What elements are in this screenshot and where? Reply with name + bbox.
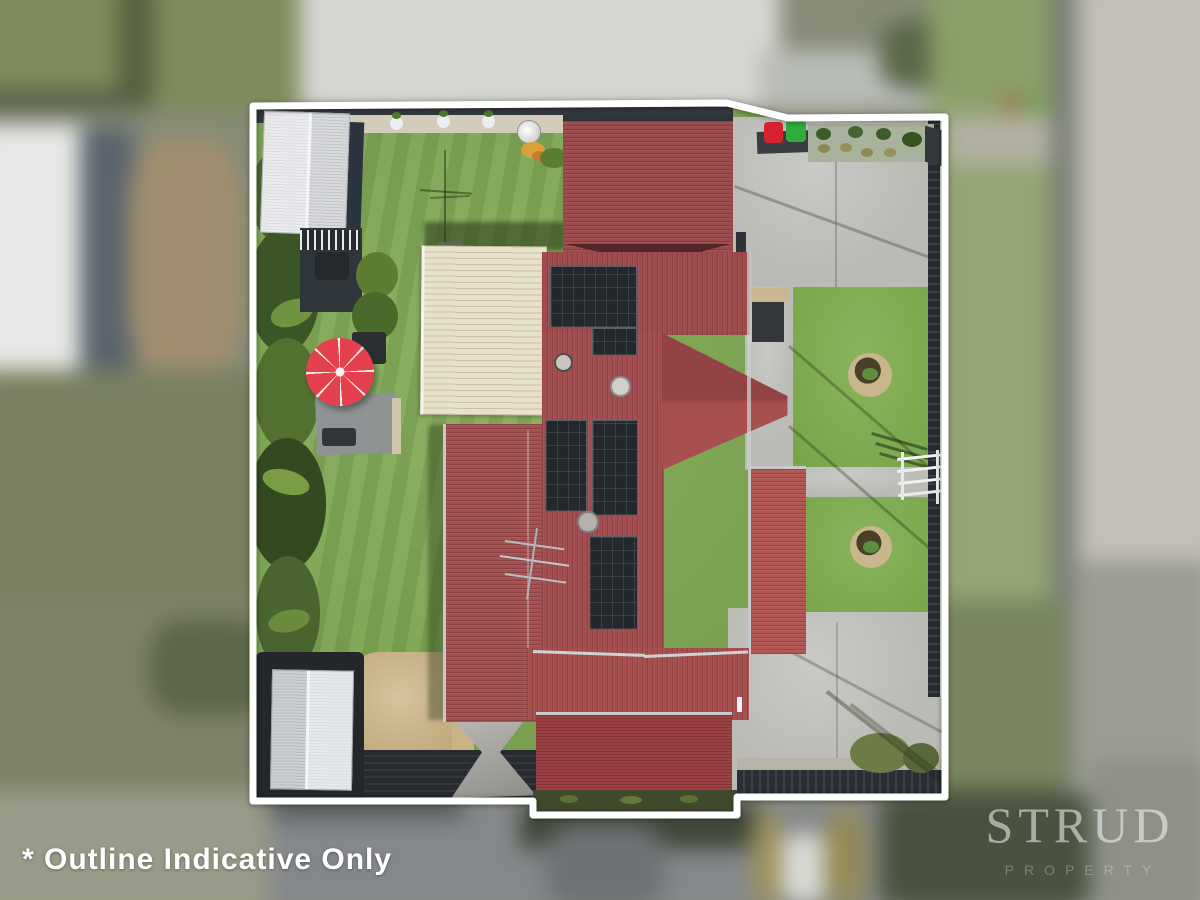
grass-tuft-4 xyxy=(902,132,922,147)
garage-roof-front xyxy=(536,712,732,796)
clothesline-post-right xyxy=(936,450,939,504)
road-bottom-right-corner xyxy=(1090,760,1200,900)
car-dark-bottom xyxy=(545,825,665,900)
red-umbrella xyxy=(306,338,374,406)
green-wheelie-bin xyxy=(786,120,806,142)
solar-array-top-ext xyxy=(592,328,637,356)
front-garden-tuft-3 xyxy=(680,795,698,803)
satellite-dish xyxy=(517,120,541,144)
pebble-strip-right xyxy=(940,117,945,697)
palm-foliage-4 xyxy=(248,438,326,570)
paver-border-tan xyxy=(392,398,401,454)
pot-plant-2 xyxy=(439,110,448,117)
grass-tuft-3 xyxy=(876,128,891,140)
roof-vent-mid xyxy=(610,376,631,397)
hedge-tan-a xyxy=(752,812,782,900)
grass-tuft-2 xyxy=(848,126,863,138)
upper-wing-roof xyxy=(563,114,733,252)
east-wing-roof xyxy=(748,466,806,654)
garden-shed-roof xyxy=(270,669,354,790)
solar-array-top xyxy=(550,266,637,328)
outline-disclaimer: * Outline Indicative Only xyxy=(22,843,392,877)
ridge-cap-silver xyxy=(747,252,751,468)
solar-array-mid-right xyxy=(592,420,638,516)
garden-shed-light-half xyxy=(307,671,353,790)
scrub-tan-left xyxy=(128,138,242,378)
rear-shed-light-half xyxy=(261,112,311,234)
pergola-roof xyxy=(420,245,546,415)
solar-array-mid-left xyxy=(545,420,587,512)
gravel-bed-mid xyxy=(750,288,790,302)
tree-shadow-left xyxy=(150,620,270,715)
carport-slat-roof xyxy=(300,230,360,250)
hedge-tan-b xyxy=(824,812,866,900)
neighbour-yard-mid-left xyxy=(0,370,270,620)
tree-row-top xyxy=(118,0,154,105)
mulch-dot-2 xyxy=(840,143,852,152)
pot-plant-1 xyxy=(392,112,401,119)
shrub-upper-bed xyxy=(862,368,878,380)
shrub-lower-bed xyxy=(863,541,879,553)
aerial-property-photo: * Outline Indicative Only STRUD PROPERTY xyxy=(0,0,1200,900)
front-garden-tuft-2 xyxy=(620,796,642,804)
outdoor-table-set xyxy=(315,252,349,280)
sun-lounge xyxy=(322,428,356,446)
roof-vent-upper xyxy=(554,353,573,372)
roof-vent-lower xyxy=(577,511,599,533)
front-fence-right xyxy=(737,770,945,798)
neighbour-roof-top-center xyxy=(300,0,780,110)
mulch-dot-1 xyxy=(818,144,830,153)
clothesline-post-left xyxy=(901,452,904,500)
bed-corner-fence xyxy=(925,126,942,167)
street-trees-bottom-right xyxy=(850,790,1120,900)
red-wheelie-bin xyxy=(764,122,783,143)
rear-shed-roof xyxy=(260,111,350,236)
pot-plant-3 xyxy=(484,110,493,117)
grass-tuft-1 xyxy=(816,128,831,140)
solar-array-lower xyxy=(589,536,638,630)
mulch-dot-3 xyxy=(861,148,873,157)
front-shrub-right-a xyxy=(850,733,910,773)
driveway-joint-line-top xyxy=(835,150,837,290)
front-mid-roof xyxy=(527,648,749,720)
mulch-dot-4 xyxy=(884,148,896,157)
garage-white-pipe xyxy=(737,697,742,712)
ac-pad-dark xyxy=(752,302,784,342)
front-garden-tuft-1 xyxy=(560,795,578,803)
